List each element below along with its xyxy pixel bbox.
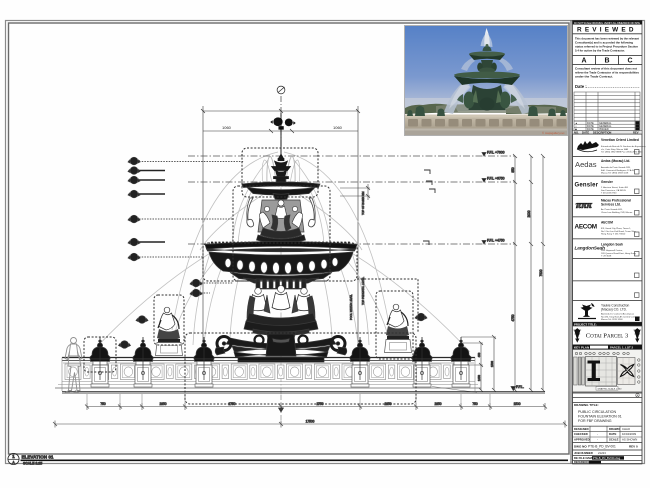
svg-text:Tel: (853) 2882 8888 Fax: (85: Tel: (853) 2882 8888 Fax: (853) 2882 866… <box>601 152 643 154</box>
svg-text:Edif. Comercial Rodrigues 12 A: Edif. Comercial Rodrigues 12 A-B, <box>601 169 635 172</box>
svg-text:DWG NO: DWG NO <box>574 444 587 448</box>
svg-text:1060: 1060 <box>222 125 232 130</box>
svg-text:DO NOT SCALE DRAWING. VERIFY A: DO NOT SCALE DRAWING. VERIFY ALL DIMENSI… <box>574 21 640 25</box>
svg-text:F.F.L.: F.F.L. <box>516 385 524 389</box>
svg-text:SCALE: SCALE <box>609 438 619 442</box>
svg-text:DESIGNED: DESIGNED <box>574 427 589 431</box>
svg-text:Langdon Seah: Langdon Seah <box>601 243 623 247</box>
svg-text:POOL WATER LEVEL: POOL WATER LEVEL <box>349 294 353 320</box>
svg-text:1500: 1500 <box>490 360 494 367</box>
svg-text:FOR FBF DRAWING: FOR FBF DRAWING <box>578 419 612 423</box>
svg-text:T 415.433.3700: T 415.433.3700 <box>601 193 617 195</box>
svg-text:21223: 21223 <box>598 451 606 455</box>
svg-text:Estrada da Baia de N. Senhora: Estrada da Baia de N. Senhora da Esperan… <box>601 145 646 148</box>
svg-text:Macau Tel: (853) 2833 1028: Macau Tel: (853) 2833 1028 <box>601 173 629 175</box>
svg-text:ℼℼℼ: ℼℼℼ <box>575 200 594 210</box>
svg-text:ELEVATION 01: ELEVATION 01 <box>22 454 54 459</box>
svg-text:7600: 7600 <box>539 269 543 276</box>
svg-text:8/F, Grand City Plaza, Tower 1: 8/F, Grand City Plaza, Tower 1, <box>601 227 632 230</box>
svg-text:under the Trade Contract.: under the Trade Contract. <box>575 75 613 79</box>
svg-text:2750: 2750 <box>316 402 323 406</box>
svg-text:2850: 2850 <box>434 402 441 406</box>
svg-text:F.F.L +4750: F.F.L +4750 <box>487 239 505 243</box>
svg-text:REVIEWED: REVIEWED <box>577 27 637 34</box>
svg-text:Alameda Dr. Carlos D'Assumpcao: Alameda Dr. Carlos D'Assumpcao <box>601 313 635 316</box>
svg-text:2 Harrison Street, Suite 400: 2 Harrison Street, Suite 400 <box>601 186 629 189</box>
svg-text:Avenida da Praia Grande 599,: Avenida da Praia Grande 599, <box>601 166 631 169</box>
svg-text:COTAI PARCEL 3: COTAI PARCEL 3 <box>586 333 629 340</box>
svg-text:DRAWN: DRAWN <box>609 427 620 431</box>
svg-text:CHAO: CHAO <box>622 427 631 431</box>
svg-text:2750: 2750 <box>228 402 235 406</box>
svg-text:No.180, Tong Nam Ah Central Co: No.180, Tong Nam Ah Central Comercio <box>601 315 641 318</box>
svg-text:Services Ltd.: Services Ltd. <box>601 202 621 206</box>
svg-text:AECOM: AECOM <box>575 224 597 231</box>
svg-text:Macau Tel: 2870 3208: Macau Tel: 2870 3208 <box>601 319 623 321</box>
svg-text:1500: 1500 <box>513 402 520 406</box>
svg-text:AECOM: AECOM <box>601 221 613 225</box>
svg-text:1050: 1050 <box>477 374 481 381</box>
svg-text:A: A <box>637 394 639 398</box>
svg-text:T: 28 3028: T: 28 3028 <box>601 256 612 258</box>
svg-text:2850: 2850 <box>159 402 166 406</box>
svg-text:© mapsgallery.net: © mapsgallery.net <box>542 131 565 135</box>
svg-text:PARCEL 1, LOT 2: PARCEL 1, LOT 2 <box>610 346 633 350</box>
svg-text:17500: 17500 <box>306 420 315 424</box>
svg-text:PTE-B_PD_BV001.dwg: PTE-B_PD_BV001.dwg <box>593 456 621 460</box>
svg-text:JOB NUMBER: JOB NUMBER <box>574 451 593 455</box>
svg-text:San Francisco, CA 94105: San Francisco, CA 94105 <box>601 189 627 192</box>
svg-text:AS SHOWN: AS SHOWN <box>622 438 637 442</box>
svg-text:4750: 4750 <box>511 314 515 321</box>
svg-text:B: B <box>604 58 609 65</box>
svg-text:2850: 2850 <box>384 402 391 406</box>
svg-text:Aedas (Macau) Ltd.: Aedas (Macau) Ltd. <box>601 159 630 163</box>
svg-text:5.4 for action by the Trade: 5.4 for action by the Trade Contractor. <box>575 49 625 53</box>
svg-text:F.F.L +7600: F.F.L +7600 <box>487 151 505 155</box>
svg-text:Gensler: Gensler <box>575 183 599 189</box>
svg-text:F.F.L +6750: F.F.L +6750 <box>487 177 505 181</box>
svg-text:Date :: Date : <box>575 84 587 89</box>
svg-text:750: 750 <box>100 402 106 406</box>
svg-text:850: 850 <box>511 167 515 173</box>
svg-text:TOP PEDESTAL LEVEL: TOP PEDESTAL LEVEL <box>361 276 365 305</box>
svg-text:DE FILE NAME: DE FILE NAME <box>574 456 594 460</box>
svg-text:A: A <box>581 58 586 65</box>
svg-text:10/04/2009: 10/04/2009 <box>622 432 636 436</box>
svg-text:s/n, Cotai Strip, Macau SAR: s/n, Cotai Strip, Macau SAR <box>601 148 629 151</box>
svg-text:2000: 2000 <box>527 210 531 217</box>
svg-text:GRAPHIC SCALE 1:750: GRAPHIC SCALE 1:750 <box>598 387 623 390</box>
svg-text:C: C <box>627 58 632 65</box>
svg-text:Hong Kong T: 2317 8000: Hong Kong T: 2317 8000 <box>601 234 626 236</box>
svg-text:DRAWING TITLE:: DRAWING TITLE: <box>574 403 599 407</box>
svg-text:SCALE 1:25: SCALE 1:25 <box>23 461 42 465</box>
svg-text:China Law Building 21/F, Macau: China Law Building 21/F, Macau <box>601 212 633 214</box>
svg-text:DATE: DATE <box>609 432 617 436</box>
svg-text:450: 450 <box>477 352 481 357</box>
svg-text:750: 750 <box>472 402 478 406</box>
svg-text:Venetian Orient Limited: Venetian Orient Limited <box>601 138 639 142</box>
svg-text:CHECKED: CHECKED <box>574 432 588 436</box>
svg-text:REV 0: REV 0 <box>629 444 638 448</box>
svg-text:KEY PLAN: KEY PLAN <box>574 346 589 350</box>
svg-text:-: - <box>597 438 598 442</box>
svg-text:PTE-B_PD_BV-001: PTE-B_PD_BV-001 <box>588 444 616 448</box>
svg-text:TOP OF BASIN RIM: TOP OF BASIN RIM <box>361 191 365 215</box>
svg-text:Av. Praia Grande 409,: Av. Praia Grande 409, <box>601 208 623 211</box>
svg-text:(Macau) CO. LTD.: (Macau) CO. LTD. <box>601 307 627 311</box>
svg-text:No.1 Sai Lau Kok Road, Tsuen W: No.1 Sai Lau Kok Road, Tsuen Wan, <box>601 231 637 233</box>
svg-text:REFERENCE: REFERENCE <box>574 460 590 464</box>
svg-text:-: - <box>597 432 598 436</box>
svg-text:Aedas: Aedas <box>575 160 597 169</box>
svg-text:183 Queens Road East, Hong Kon: 183 Queens Road East, Hong Kong <box>601 252 637 255</box>
svg-text:Gensler: Gensler <box>601 180 614 184</box>
svg-text:APPROVED: APPROVED <box>574 438 590 442</box>
svg-text:FOUNTAIN ELEVATION 01: FOUNTAIN ELEVATION 01 <box>578 415 622 419</box>
svg-text:28/F Hopewell Centre,: 28/F Hopewell Centre, <box>601 249 623 252</box>
svg-text:PUBLIC CIRCULATION: PUBLIC CIRCULATION <box>578 410 616 414</box>
svg-text:1060: 1060 <box>333 125 343 130</box>
